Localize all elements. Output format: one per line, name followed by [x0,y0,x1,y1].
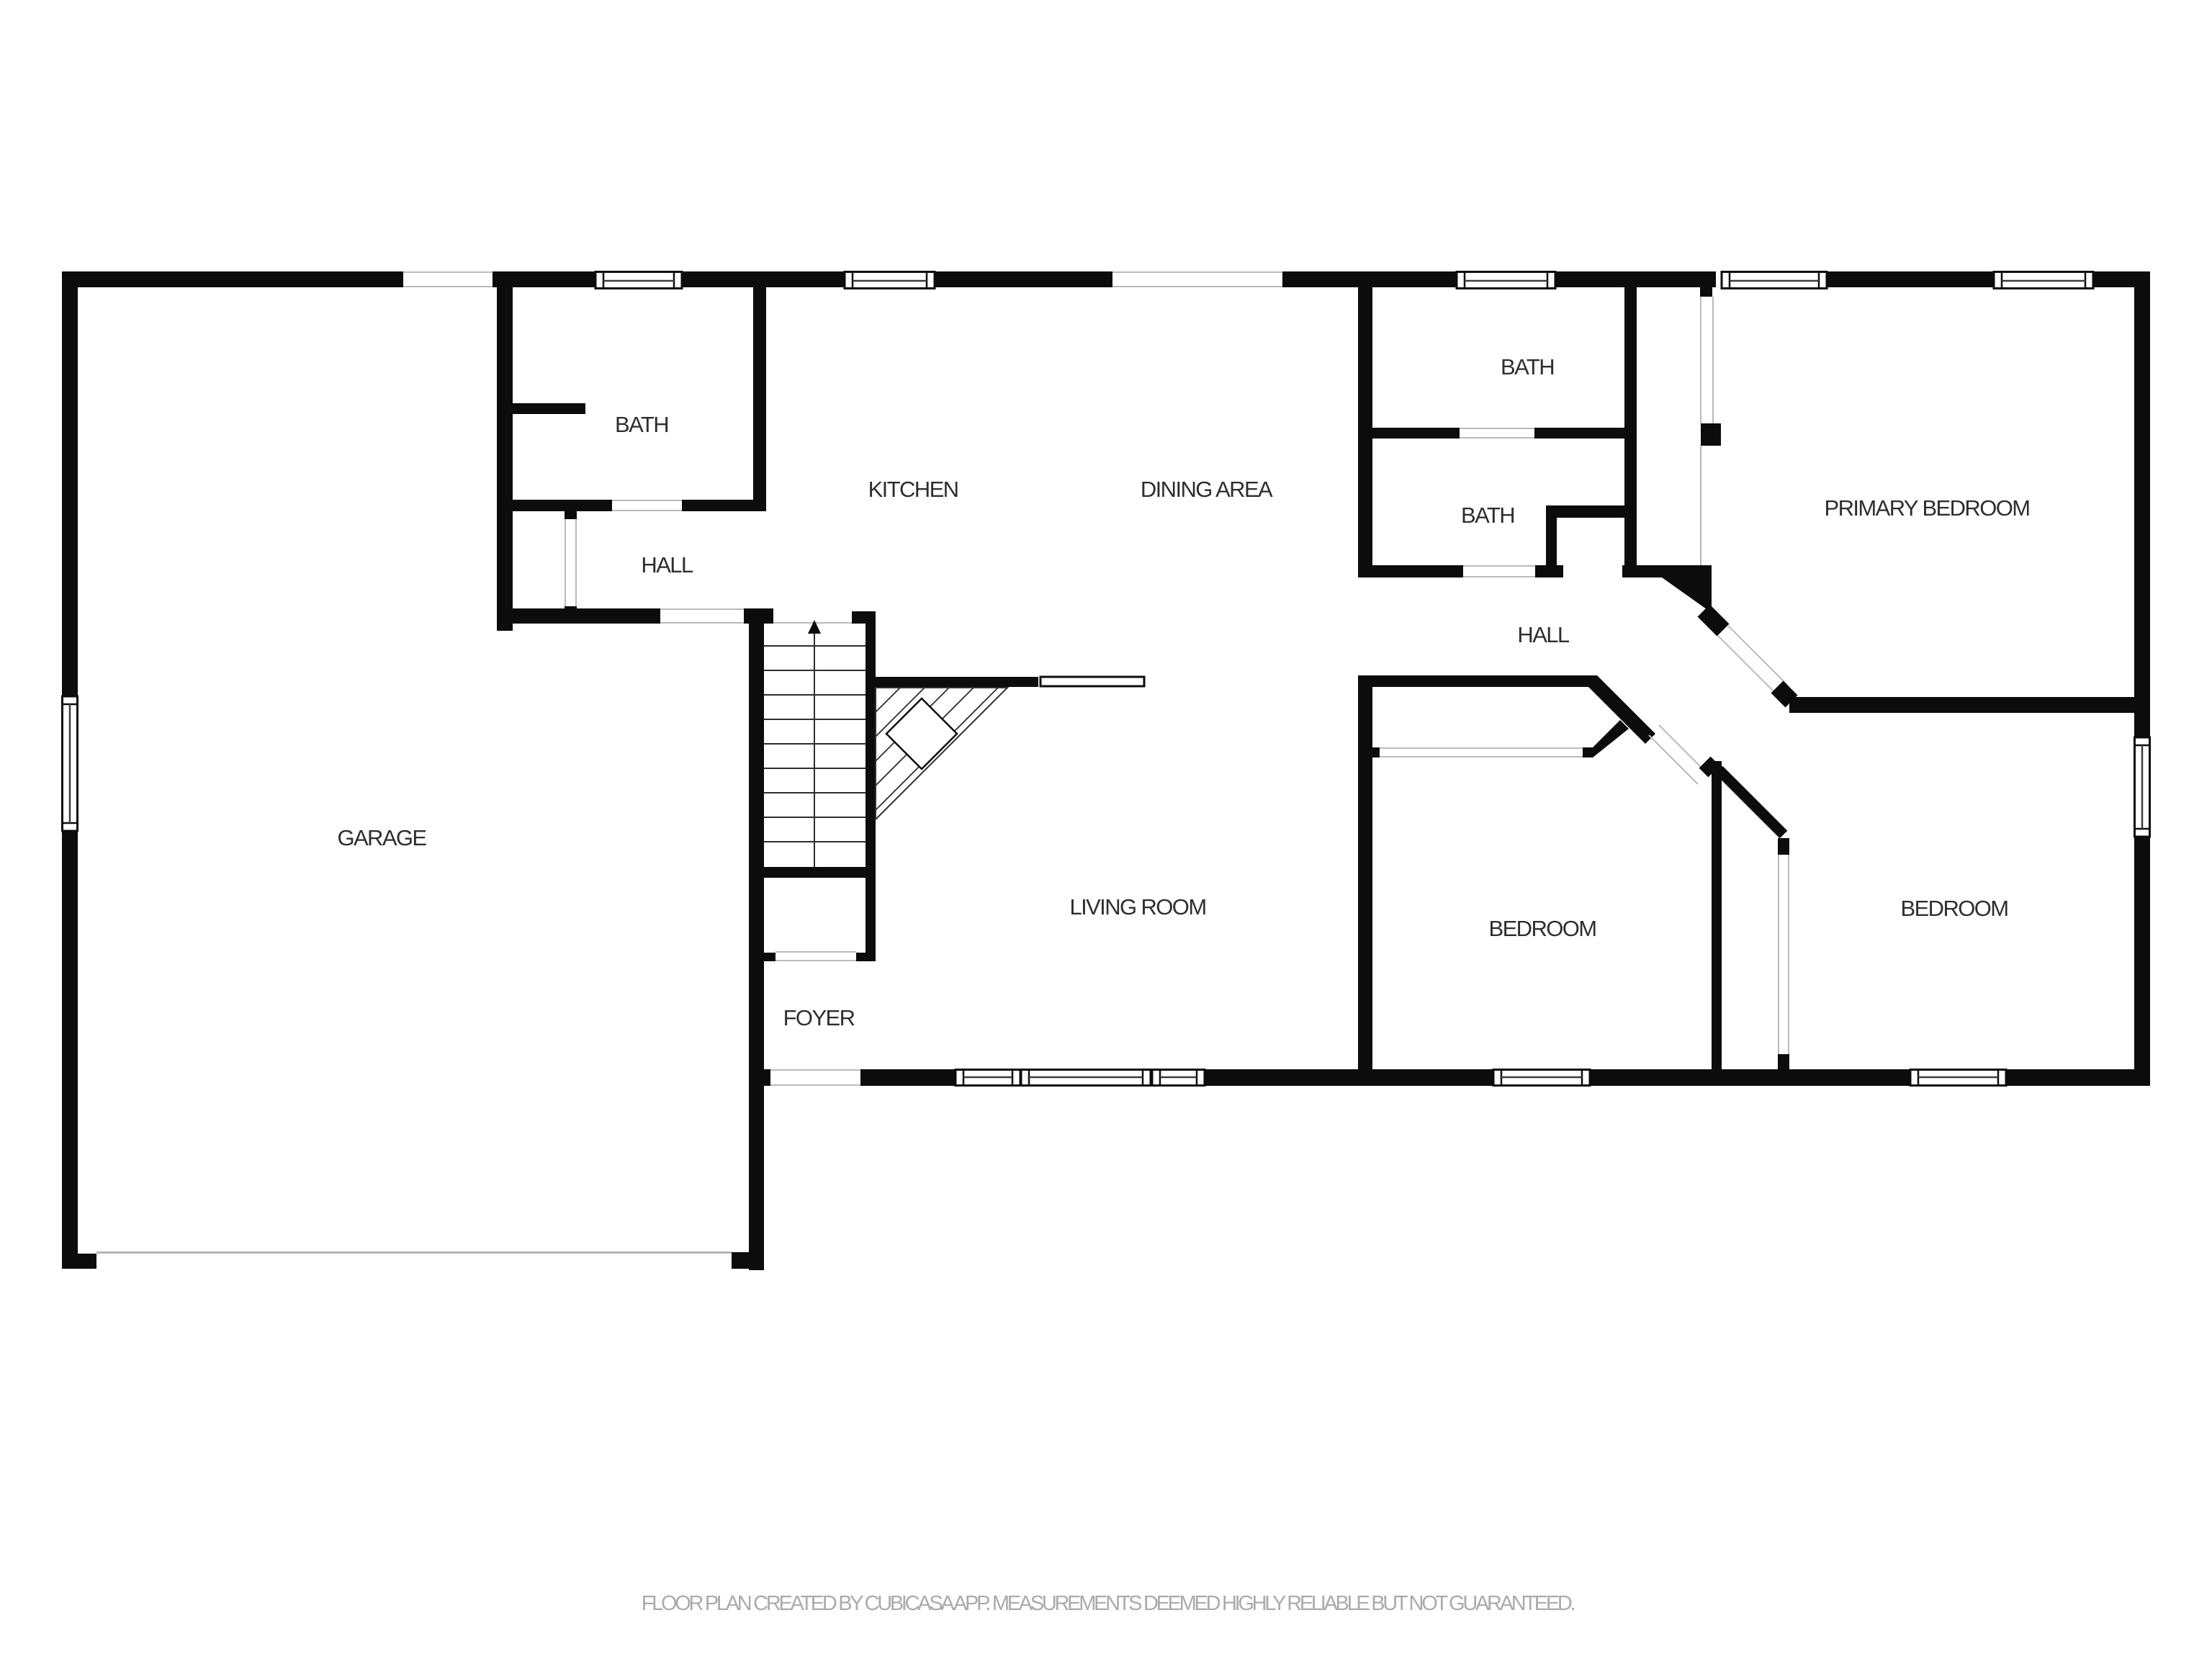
svg-text:LIVING ROOM: LIVING ROOM [1069,894,1205,920]
svg-text:FOYER: FOYER [783,1005,855,1030]
svg-text:DINING AREA: DINING AREA [1141,477,1273,502]
svg-text:HALL: HALL [641,552,693,577]
svg-text:BEDROOM: BEDROOM [1489,916,1596,941]
svg-text:FLOOR PLAN CREATED BY CUBICASA: FLOOR PLAN CREATED BY CUBICASA APP. MEAS… [642,1592,1575,1615]
svg-text:HALL: HALL [1517,622,1570,647]
svg-text:BATH: BATH [1461,503,1514,528]
svg-text:GARAGE: GARAGE [337,825,426,850]
svg-text:BEDROOM: BEDROOM [1901,896,2008,921]
svg-text:BATH: BATH [1501,354,1554,379]
svg-text:KITCHEN: KITCHEN [868,477,958,502]
svg-text:PRIMARY BEDROOM: PRIMARY BEDROOM [1825,495,2030,521]
svg-text:BATH: BATH [615,412,668,437]
